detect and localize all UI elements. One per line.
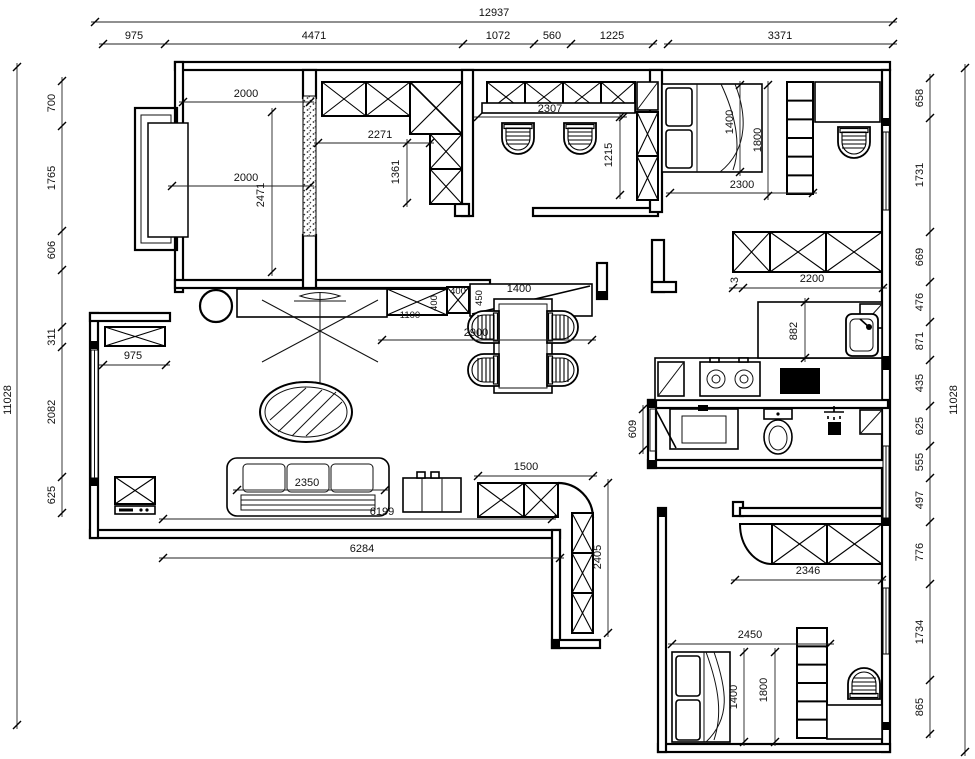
dimension-line xyxy=(604,479,612,637)
dim-label: 2307 xyxy=(538,103,562,115)
wall-column xyxy=(90,341,98,349)
wall xyxy=(658,744,890,752)
dim-label: 1731 xyxy=(914,163,926,187)
dim-label: 1500 xyxy=(514,461,538,473)
dim-label: 1400 xyxy=(728,685,740,709)
window-living-left xyxy=(91,350,98,478)
dim-label: 669 xyxy=(914,248,926,266)
dining-chair-icon xyxy=(547,354,578,386)
office-chair-icon xyxy=(502,123,534,154)
corner-shelf-office xyxy=(637,82,658,110)
dim-label: 11028 xyxy=(948,385,960,415)
cabinet-x-box xyxy=(826,232,882,272)
wall-column xyxy=(882,722,890,730)
wall-column xyxy=(648,400,656,408)
cabinet-x-box xyxy=(572,513,593,553)
wall-column xyxy=(882,118,890,126)
dim-label: 2346 xyxy=(796,565,820,577)
dim-label: 1361 xyxy=(390,160,402,184)
dimension-line xyxy=(403,139,411,207)
stove-icon xyxy=(700,358,760,396)
dim-label: 6284 xyxy=(350,543,374,555)
cabinet-x-box xyxy=(115,477,155,504)
dim-label: 2000 xyxy=(234,172,258,184)
cabinet-x-box xyxy=(430,134,462,169)
wall xyxy=(303,70,316,98)
entry-console xyxy=(237,289,387,392)
chair-icon xyxy=(848,668,880,699)
wall-column xyxy=(648,460,656,468)
dim-label: 2082 xyxy=(46,400,58,424)
office-chair-icon xyxy=(564,123,596,154)
dim-label: 2471 xyxy=(255,183,267,207)
wall-column xyxy=(90,478,98,486)
cabinet-x-box xyxy=(366,82,410,116)
dimension-line xyxy=(99,40,657,48)
tv-soundbar xyxy=(115,506,155,514)
dimension-line xyxy=(639,405,647,454)
wall xyxy=(90,313,170,321)
dim-label: 882 xyxy=(788,322,800,340)
dimension-line xyxy=(91,18,897,26)
cabinet-x-box xyxy=(478,483,524,517)
wall xyxy=(462,70,473,216)
window-right-bottom xyxy=(883,588,889,654)
cabinet-x-box xyxy=(733,232,770,272)
wall-column xyxy=(597,291,607,299)
dim-label: 12937 xyxy=(479,7,510,19)
dim-label: 450 xyxy=(474,290,485,306)
wall-column xyxy=(658,508,666,517)
dim-label: 435 xyxy=(914,374,926,392)
shower-icon xyxy=(824,406,844,435)
dining-chair-icon xyxy=(547,311,578,343)
dim-label: 1072 xyxy=(486,30,510,42)
wall xyxy=(175,62,890,70)
worktop-board xyxy=(780,368,820,394)
dining-chair-icon xyxy=(468,354,499,386)
wardrobe-ladder xyxy=(797,628,827,738)
dim-label: 2271 xyxy=(368,129,392,141)
dim-label: 606 xyxy=(46,241,58,259)
dimension-line xyxy=(926,74,934,738)
dim-label: 1800 xyxy=(758,678,770,702)
dimension-line xyxy=(961,64,969,756)
bed-bottom-bedroom xyxy=(672,652,730,742)
wall xyxy=(740,508,882,516)
dim-label: 1400 xyxy=(724,110,736,134)
floor-plan-drawing: 12937 975 4471 1072 560 1225 3371 11028 … xyxy=(0,0,975,759)
dim-label: 3371 xyxy=(768,30,792,42)
dim-label: 2300 xyxy=(730,179,754,191)
dim-label: 625 xyxy=(46,486,58,504)
desk-bottom-bedroom xyxy=(827,705,882,739)
cabinet-x-box xyxy=(430,169,462,204)
wall xyxy=(652,282,676,292)
cabinet-x-box xyxy=(637,156,658,200)
dimension-line xyxy=(740,648,748,746)
dim-label: 1734 xyxy=(914,620,926,644)
wall xyxy=(90,530,560,538)
cabinet-x-box xyxy=(637,112,658,156)
dim-label: 555 xyxy=(914,453,926,471)
dim-label: 497 xyxy=(914,491,926,509)
cabinet-x-box xyxy=(105,327,165,346)
cabinet-x-box xyxy=(770,232,826,272)
corner-shelf-bath xyxy=(860,410,882,434)
desk-top-bedroom xyxy=(815,82,880,122)
dim-label: 1215 xyxy=(603,143,615,167)
dim-label: 658 xyxy=(914,89,926,107)
dim-label: 2000 xyxy=(234,88,258,100)
rug xyxy=(260,382,352,442)
cabinet-x-box xyxy=(772,524,827,564)
window-right-top xyxy=(883,132,889,210)
wall-column xyxy=(552,640,560,648)
wardrobe-shelves xyxy=(787,82,827,738)
dim-label: 560 xyxy=(543,30,561,42)
dim-label: 1765 xyxy=(46,166,58,190)
dim-label: 6199 xyxy=(370,506,394,518)
dim-label: 11028 xyxy=(2,385,14,415)
dim-label: 1400 xyxy=(507,283,531,295)
hatched-wall xyxy=(303,96,316,236)
dim-label: 2350 xyxy=(295,477,319,489)
dim-label: 700 xyxy=(46,94,58,112)
dim-label: 400 xyxy=(450,286,466,297)
wall xyxy=(552,530,560,648)
dimension-line xyxy=(58,77,66,517)
dim-label: 865 xyxy=(914,698,926,716)
dimension-line xyxy=(268,108,276,276)
chair-icon xyxy=(838,127,870,158)
cabinet-x-box xyxy=(827,524,882,564)
dining-table xyxy=(494,299,552,393)
dim-label: 1225 xyxy=(600,30,624,42)
wall xyxy=(648,460,888,468)
dim-label: 776 xyxy=(914,543,926,561)
window-right-middle xyxy=(883,446,889,518)
bed-top-bedroom xyxy=(662,84,762,172)
wall xyxy=(648,400,888,408)
wall xyxy=(303,235,316,288)
toilet-icon xyxy=(764,409,792,454)
wall xyxy=(533,208,658,216)
wall-column xyxy=(882,356,890,370)
dimension-line xyxy=(616,113,624,199)
dim-label: 2405 xyxy=(592,545,604,569)
dim-label: 1100 xyxy=(400,310,420,321)
dimension-line xyxy=(159,554,564,562)
wall xyxy=(175,280,490,288)
dim-label: 609 xyxy=(627,420,639,438)
cabinet-x-box xyxy=(572,553,593,593)
dimension-line xyxy=(99,361,170,369)
dimension-line xyxy=(764,81,772,200)
wall xyxy=(658,508,666,752)
dim-label: 2900 xyxy=(464,327,488,339)
corner-cabinet-arc-bedroom xyxy=(740,524,772,564)
side-cabinet xyxy=(403,472,461,512)
dim-label: 3 xyxy=(729,277,741,283)
entry-stool-icon xyxy=(200,290,232,322)
cabinet-x-box xyxy=(322,82,366,116)
dim-label: 2450 xyxy=(738,629,762,641)
dim-label: 1800 xyxy=(752,128,764,152)
dimension-line xyxy=(729,284,887,292)
dim-label: 625 xyxy=(914,417,926,435)
dim-label: 476 xyxy=(914,293,926,311)
dim-label: 311 xyxy=(46,328,58,346)
dimension-line xyxy=(13,63,21,729)
dim-label: 871 xyxy=(914,332,926,350)
bay-window-master xyxy=(135,108,188,250)
dimension-line xyxy=(474,472,597,480)
wall xyxy=(648,400,656,468)
cabinet-x-box xyxy=(524,483,558,517)
dim-label: 975 xyxy=(124,350,142,362)
bathroom-vanity xyxy=(670,405,738,449)
floor-plan-page: 12937 975 4471 1072 560 1225 3371 11028 … xyxy=(0,0,975,759)
cabinet-x-box xyxy=(572,593,593,633)
kitchen-sink-icon xyxy=(846,314,878,356)
wall xyxy=(455,204,469,216)
dim-label: 2200 xyxy=(800,273,824,285)
dim-label: 4471 xyxy=(302,30,326,42)
dimension-line xyxy=(771,648,779,746)
dim-label: 400 xyxy=(429,295,440,311)
dim-label: 975 xyxy=(125,30,143,42)
walls xyxy=(90,62,890,752)
dimension-line xyxy=(731,576,886,584)
wardrobe-ladder xyxy=(787,82,813,194)
